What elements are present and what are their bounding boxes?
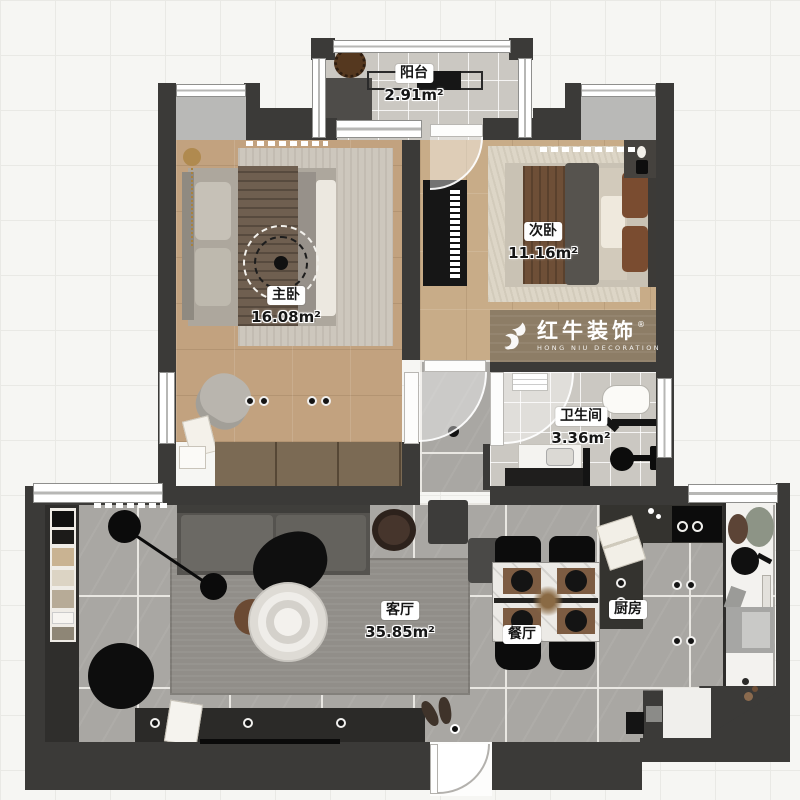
- lamp-cord: [191, 168, 193, 246]
- dining-chair: [495, 536, 541, 564]
- master-pillow: [195, 248, 231, 306]
- second-pillow: [622, 172, 648, 218]
- books: [52, 570, 74, 586]
- bathroom-sink: [546, 448, 574, 466]
- master-wardrobe: [215, 442, 402, 488]
- room-area: 35.85m²: [365, 623, 435, 641]
- balcony-window-right: [518, 58, 532, 138]
- room-label-living: 客厅 35.85m²: [365, 601, 435, 641]
- tv: [200, 739, 340, 744]
- wall: [533, 108, 581, 140]
- room-name: 客厅: [381, 601, 419, 620]
- balcony-window: [333, 40, 511, 53]
- wall: [483, 444, 490, 490]
- coffee-table: [248, 582, 328, 662]
- second-headboard: [648, 163, 656, 287]
- floor-lamp-shade: [200, 573, 227, 600]
- kitchen-cabinet-white: [663, 688, 711, 740]
- wall: [776, 483, 790, 762]
- bookshelf-item: [52, 511, 74, 527]
- bay-window-seat-left: [176, 96, 246, 140]
- books: [52, 590, 74, 608]
- spice-jar: [742, 678, 749, 685]
- room-label-master: 主卧 16.08m²: [251, 286, 321, 326]
- room-area: 3.36m²: [551, 429, 610, 447]
- wall: [402, 140, 420, 360]
- room-name: 主卧: [267, 286, 305, 305]
- console-light: [243, 718, 253, 728]
- room-name: 餐厅: [503, 625, 541, 644]
- kitchen-window: [688, 484, 778, 503]
- figurine: [637, 146, 646, 158]
- brand-logo: 红牛装饰® HONG NIU DECORATION: [500, 320, 661, 352]
- entrance-door-leaf: [430, 744, 438, 794]
- dining-chair: [549, 536, 595, 564]
- second-bedroom-corridor: [420, 310, 490, 362]
- burner: [677, 521, 688, 532]
- ceiling-light-center: [274, 256, 288, 270]
- wall: [402, 442, 420, 490]
- bathroom-window: [657, 378, 672, 458]
- room-area: 11.16m²: [508, 244, 578, 262]
- room-label-second: 次卧 11.16m²: [508, 222, 578, 262]
- shower-drain: [610, 447, 634, 471]
- decor-dot: [656, 514, 661, 519]
- decor-dot: [648, 508, 654, 514]
- room-name: 厨房: [609, 600, 647, 619]
- kitchen-sink: [731, 547, 759, 575]
- curtain-symbol: [246, 141, 328, 146]
- plant-pot: [728, 514, 748, 544]
- trash-bin: [626, 712, 644, 734]
- burner: [692, 521, 703, 532]
- master-door-leaf: [404, 372, 419, 444]
- washing-machine: [322, 78, 372, 123]
- dining-chair: [495, 640, 541, 670]
- downlight: [686, 636, 696, 646]
- spice-jar: [744, 692, 753, 701]
- wall: [158, 83, 176, 140]
- books: [52, 548, 74, 566]
- centerpiece-plant: [532, 586, 564, 616]
- bull-icon: [500, 320, 530, 352]
- room-label-balcony: 阳台 2.91m²: [384, 64, 443, 104]
- cutting-board: [762, 575, 771, 609]
- cabinet-knob: [616, 578, 626, 588]
- room-area: 2.91m²: [384, 86, 443, 104]
- curtain-symbol: [540, 147, 636, 152]
- balcony-door-leaf: [430, 124, 483, 137]
- step-stool: [646, 706, 662, 722]
- second-bedroom-door-leaf: [424, 360, 486, 372]
- room-area: 16.08m²: [251, 308, 321, 326]
- wall: [640, 738, 778, 762]
- room-name: 阳台: [395, 64, 433, 83]
- dining-chair: [549, 640, 595, 670]
- wall: [490, 362, 656, 372]
- master-window: [159, 372, 175, 444]
- downlight: [672, 636, 682, 646]
- plate: [511, 570, 533, 592]
- closet-item: [636, 160, 648, 174]
- downlight: [321, 396, 331, 406]
- downlight: [259, 396, 269, 406]
- pouf: [372, 509, 416, 551]
- room-name: 卫生间: [555, 407, 607, 426]
- downlight: [307, 396, 317, 406]
- second-pillow: [622, 226, 648, 272]
- bay-window-seat-right: [581, 96, 656, 140]
- room-label-bathroom: 卫生间 3.36m²: [551, 407, 610, 447]
- magazine: [164, 700, 203, 747]
- wall: [25, 742, 430, 790]
- spice-jar: [752, 686, 758, 692]
- floor-lamp-master: [183, 148, 201, 166]
- plate: [565, 610, 587, 632]
- wall: [490, 486, 690, 505]
- plate: [565, 570, 587, 592]
- downlight: [686, 580, 696, 590]
- side-cabinet: [428, 500, 468, 544]
- piano: [423, 180, 467, 286]
- books: [52, 612, 74, 624]
- master-balcony-window: [336, 120, 422, 138]
- door-stop: [450, 724, 460, 734]
- books: [52, 627, 74, 640]
- room-label-dining: 餐厅: [503, 625, 541, 644]
- downlight: [245, 396, 255, 406]
- shower-partition: [612, 419, 660, 426]
- kitchen-plant: [744, 507, 774, 547]
- wall: [311, 38, 335, 60]
- bay-window-right: [581, 84, 656, 97]
- bookshelf-item: [52, 530, 74, 544]
- wall: [244, 108, 314, 140]
- room-name: 次卧: [524, 222, 562, 241]
- wall: [492, 742, 642, 790]
- balcony-window-left: [312, 58, 326, 138]
- room-label-kitchen: 厨房: [609, 600, 647, 619]
- wall: [656, 83, 674, 140]
- bean-bag: [88, 643, 154, 709]
- fridge-door: [742, 612, 770, 648]
- master-pillow: [195, 182, 231, 240]
- console-light: [336, 718, 346, 728]
- logo-brand: 红牛装饰®: [537, 321, 661, 342]
- piano-keys: [450, 188, 460, 278]
- glass-partition: [583, 448, 590, 490]
- downlight: [672, 580, 682, 590]
- living-window: [33, 483, 163, 503]
- curtain-symbol: [94, 503, 168, 508]
- floor-plan: 红牛装饰® HONG NIU DECORATION: [0, 0, 800, 800]
- console-light: [150, 718, 160, 728]
- bathroom-door-leaf: [490, 372, 504, 446]
- wall: [509, 38, 533, 60]
- side-table: [179, 446, 206, 469]
- bay-window-left: [176, 84, 246, 97]
- registered-mark: ®: [637, 320, 645, 329]
- logo-subtitle: HONG NIU DECORATION: [537, 345, 661, 352]
